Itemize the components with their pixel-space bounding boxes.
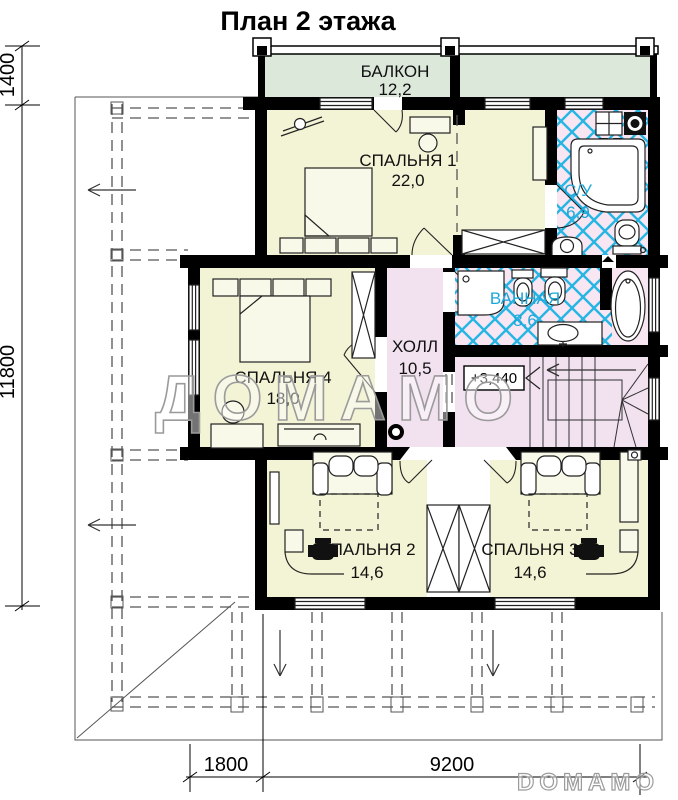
toilet-icon bbox=[613, 220, 641, 254]
window bbox=[649, 278, 659, 332]
window bbox=[295, 598, 365, 609]
label-bedroom2: СПАЛЬНЯ 2 bbox=[318, 540, 415, 559]
label-balcony: БАЛКОН bbox=[361, 62, 430, 81]
page-title: План 2 этажа bbox=[220, 6, 396, 36]
area-bathroom: 8,6 bbox=[513, 311, 537, 330]
vent-icon bbox=[628, 450, 641, 460]
window bbox=[320, 98, 372, 109]
dim-11800: 11800 bbox=[0, 345, 19, 399]
vanity-sink-icon bbox=[538, 322, 602, 347]
oval-bathtub-icon bbox=[611, 271, 645, 341]
cabinet-icon bbox=[533, 127, 547, 180]
floor-plan: План 2 этажа bbox=[0, 0, 678, 800]
window bbox=[565, 98, 603, 109]
dimension-bottom: 1800 9200 bbox=[183, 614, 648, 795]
dim-1800: 1800 bbox=[204, 754, 249, 776]
area-balcony: 12,2 bbox=[378, 80, 411, 99]
label-bedroom3: СПАЛЬНЯ 3 bbox=[481, 540, 578, 559]
dim-9200: 9200 bbox=[430, 754, 475, 776]
label-hall: ХОЛЛ bbox=[392, 337, 438, 356]
radiator-icon bbox=[270, 472, 279, 524]
sink-icon bbox=[552, 237, 582, 255]
label-su: С/У bbox=[564, 181, 592, 200]
watermark-center: ДОМАМО bbox=[155, 362, 525, 434]
area-su: 6,9 bbox=[566, 203, 590, 222]
window bbox=[189, 285, 199, 330]
dim-1400: 1400 bbox=[0, 53, 19, 98]
watermark-bottom: DOMAMO bbox=[517, 769, 659, 796]
wardrobe-icon bbox=[462, 230, 545, 254]
chair-icon bbox=[419, 134, 437, 152]
bathtub-icon bbox=[571, 139, 645, 212]
window bbox=[485, 98, 530, 109]
area-bedroom3: 14,6 bbox=[513, 563, 546, 582]
label-bedroom1: СПАЛЬНЯ 1 bbox=[359, 151, 456, 170]
wardrobe-icon bbox=[352, 272, 375, 358]
area-bedroom2: 14,6 bbox=[350, 563, 383, 582]
window bbox=[495, 598, 575, 609]
area-bedroom1: 22,0 bbox=[391, 171, 424, 190]
dimension-left: 1400 11800 bbox=[0, 41, 40, 611]
label-bathroom: ВАННАЯ bbox=[490, 289, 560, 308]
room-balcony bbox=[253, 38, 658, 97]
window bbox=[649, 378, 659, 420]
